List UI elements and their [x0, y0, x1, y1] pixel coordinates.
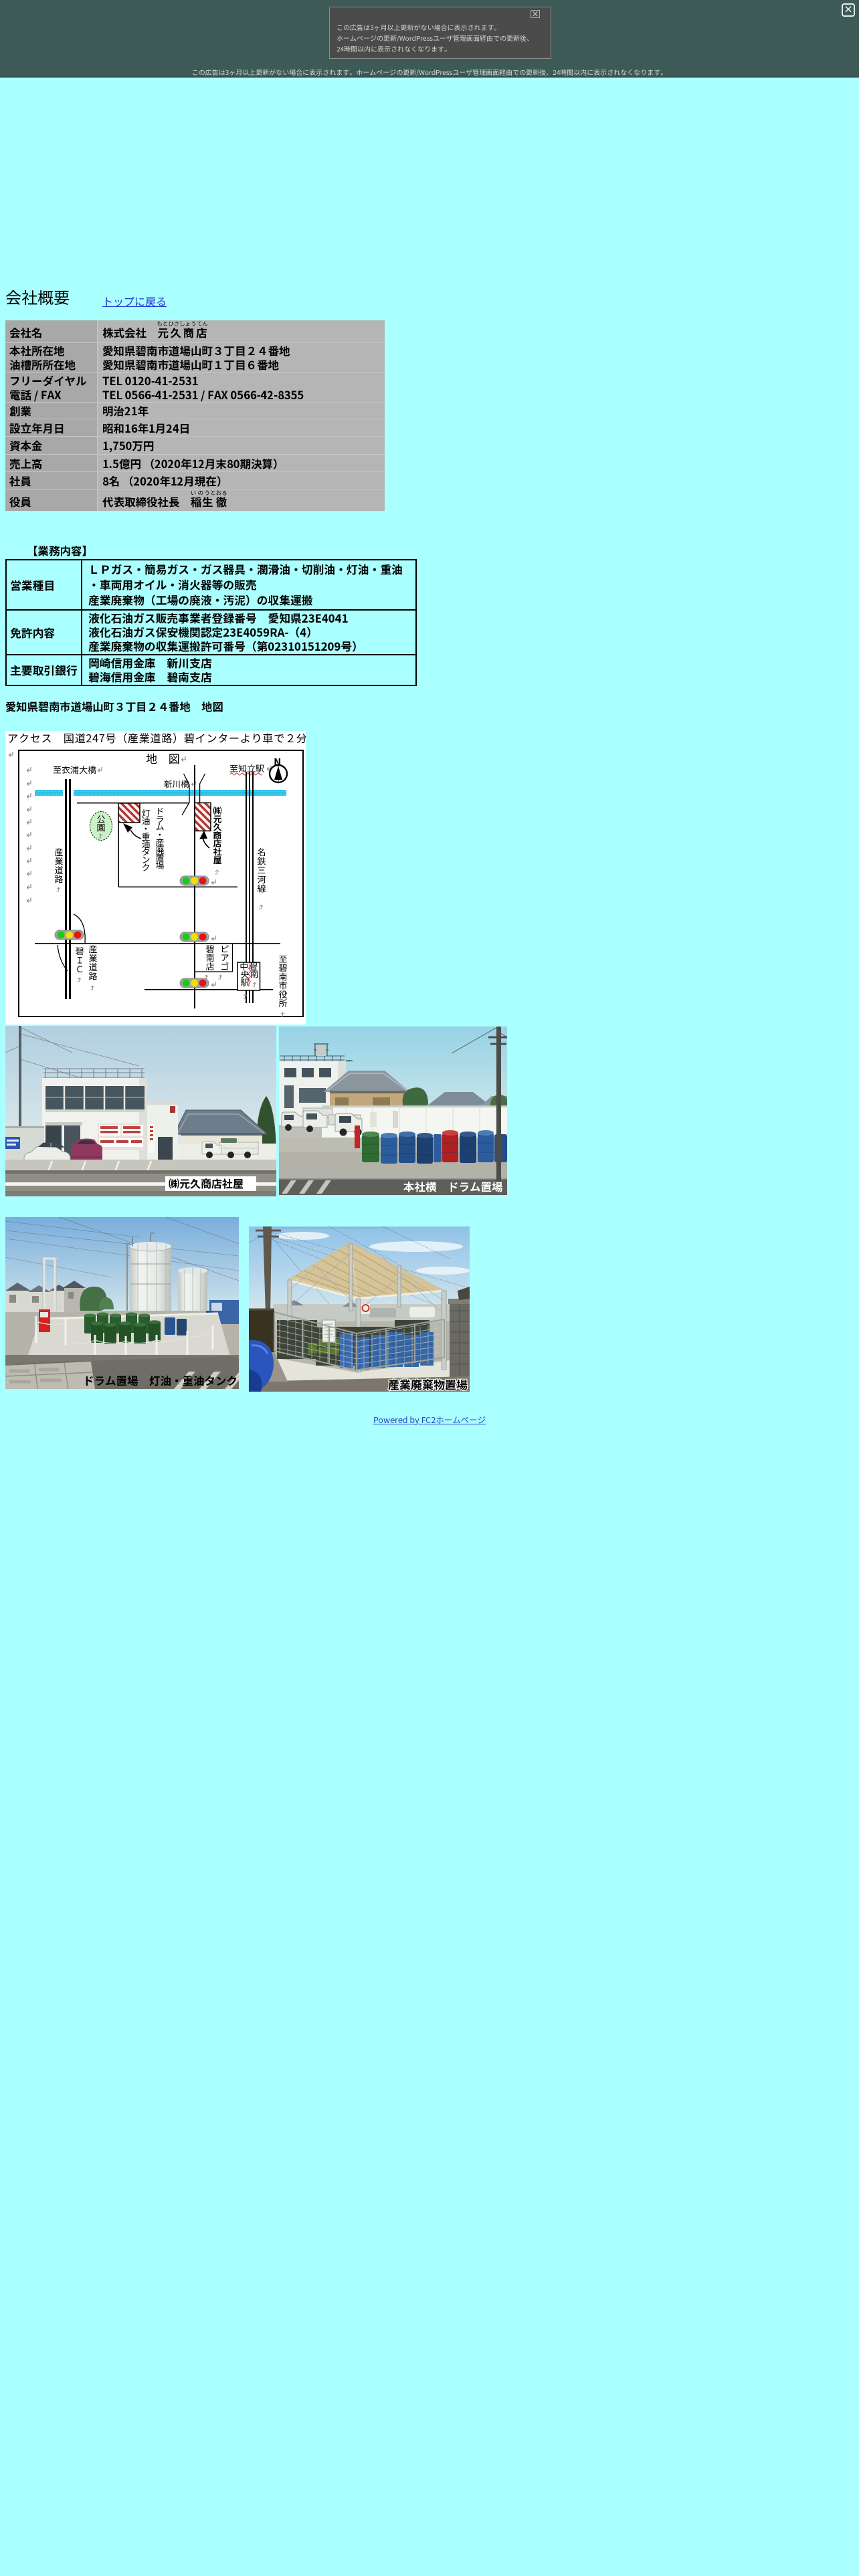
svg-text:ドラム置場 灯油・重油タンク: ドラム置場 灯油・重油タンク	[83, 1372, 237, 1388]
svg-text:碧ＩＣ: 碧ＩＣ	[75, 944, 84, 975]
svg-text:中央駅: 中央駅	[240, 960, 249, 988]
svg-text:産業廃棄物置場: 産業廃棄物置場	[388, 1376, 468, 1392]
svg-text:灯油・重油タンク: 灯油・重油タンク	[141, 807, 150, 873]
svg-text:ピアゴ: ピアゴ	[220, 942, 229, 972]
svg-text:本社横 ドラム置場: 本社横 ドラム置場	[403, 1178, 503, 1194]
svg-text:名鉄三河線: 名鉄三河線	[256, 845, 266, 894]
svg-text:㈱元久商店社屋: ㈱元久商店社屋	[169, 1175, 244, 1191]
svg-text:公園: 公園	[96, 813, 105, 834]
svg-text:碧南店: 碧南店	[205, 942, 214, 972]
svg-text:産業道路: 産業道路	[88, 942, 97, 982]
svg-text:ドラム・産廃置場: ドラム・産廃置場	[155, 804, 165, 871]
svg-text:至碧南市役所: 至碧南市役所	[278, 952, 287, 1009]
svg-text:地 図: 地 図	[146, 750, 180, 766]
svg-text:産業道路: 産業道路	[54, 845, 63, 885]
svg-text:アクセス 国道247号（産業道路）碧インターより車で２分: アクセス 国道247号（産業道路）碧インターより車で２分	[7, 731, 306, 746]
svg-text:新川橋: 新川橋	[164, 777, 189, 790]
svg-text:至衣浦大橋: 至衣浦大橋	[53, 763, 96, 776]
svg-text:㈱元久商店社屋: ㈱元久商店社屋	[213, 804, 221, 866]
